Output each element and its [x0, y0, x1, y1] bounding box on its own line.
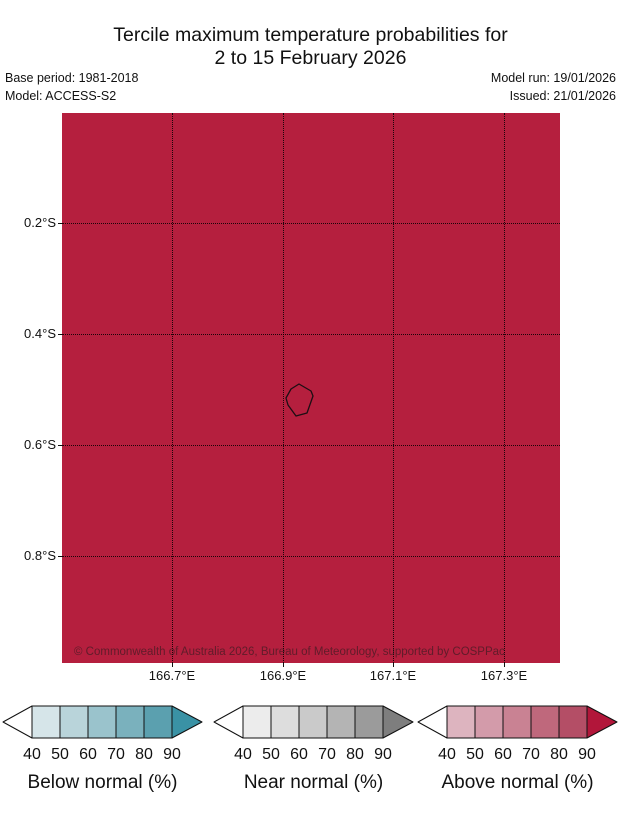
legend-tick-label: 80	[340, 746, 370, 764]
legend-tick-label: 40	[228, 746, 258, 764]
page: Tercile maximum temperature probabilitie…	[0, 0, 621, 839]
legend-colorbar-below-normal	[2, 704, 203, 740]
legend-colorbar-near-normal	[213, 704, 414, 740]
legend-tick-label: 60	[488, 746, 518, 764]
page-title: Tercile maximum temperature probabilitie…	[0, 24, 621, 70]
title-line-1: Tercile maximum temperature probabilitie…	[0, 24, 621, 47]
legend-tick-labels: 405060708090	[2, 746, 203, 766]
y-axis-label: 0.8°S	[0, 548, 56, 563]
legend-tick-label: 80	[544, 746, 574, 764]
legend-tick-label: 90	[157, 746, 187, 764]
legend-near-normal: 405060708090Near normal (%)	[213, 704, 414, 794]
legend-tick-labels: 405060708090	[417, 746, 618, 766]
legend-tick-labels: 405060708090	[213, 746, 414, 766]
legend-tick-label: 50	[460, 746, 490, 764]
legend-tick-label: 80	[129, 746, 159, 764]
issued-text: Issued: 21/01/2026	[491, 87, 616, 105]
legend-tick-label: 50	[45, 746, 75, 764]
legend-colorbar-above-normal	[417, 704, 618, 740]
legend-tick-label: 40	[432, 746, 462, 764]
y-axis-tick	[58, 334, 62, 335]
legend-tick-label: 50	[256, 746, 286, 764]
legend-tick-label: 70	[312, 746, 342, 764]
model-text: Model: ACCESS-S2	[5, 87, 138, 105]
x-axis-label: 167.3°E	[469, 668, 539, 683]
map-canvas: © Commonwealth of Australia 2026, Bureau…	[62, 113, 560, 663]
y-axis-tick	[58, 445, 62, 446]
island-outline	[62, 113, 560, 663]
legend-tick-label: 90	[572, 746, 602, 764]
x-axis-tick	[283, 663, 284, 667]
x-axis-label: 166.9°E	[248, 668, 318, 683]
base-period-text: Base period: 1981-2018	[5, 69, 138, 87]
legend-title-near-normal: Near normal (%)	[213, 772, 414, 794]
legend-tick-label: 60	[73, 746, 103, 764]
legend-tick-label: 60	[284, 746, 314, 764]
y-axis-tick	[58, 223, 62, 224]
legend-below-normal: 405060708090Below normal (%)	[2, 704, 203, 794]
model-run-text: Model run: 19/01/2026	[491, 69, 616, 87]
meta-left: Base period: 1981-2018 Model: ACCESS-S2	[5, 69, 138, 105]
y-axis-label: 0.2°S	[0, 215, 56, 230]
legend-tick-label: 40	[17, 746, 47, 764]
legend-tick-label: 70	[516, 746, 546, 764]
map-copyright: © Commonwealth of Australia 2026, Bureau…	[74, 646, 560, 658]
x-axis-label: 167.1°E	[358, 668, 428, 683]
meta-right: Model run: 19/01/2026 Issued: 21/01/2026	[491, 69, 616, 105]
x-axis-tick	[393, 663, 394, 667]
y-axis-label: 0.6°S	[0, 437, 56, 452]
x-axis-label: 166.7°E	[137, 668, 207, 683]
title-line-2: 2 to 15 February 2026	[0, 47, 621, 70]
x-axis-tick	[504, 663, 505, 667]
x-axis-tick	[172, 663, 173, 667]
y-axis-tick	[58, 556, 62, 557]
legend-title-above-normal: Above normal (%)	[417, 772, 618, 794]
y-axis-label: 0.4°S	[0, 326, 56, 341]
legend-tick-label: 90	[368, 746, 398, 764]
legend-title-below-normal: Below normal (%)	[2, 772, 203, 794]
legend-tick-label: 70	[101, 746, 131, 764]
legend-above-normal: 405060708090Above normal (%)	[417, 704, 618, 794]
